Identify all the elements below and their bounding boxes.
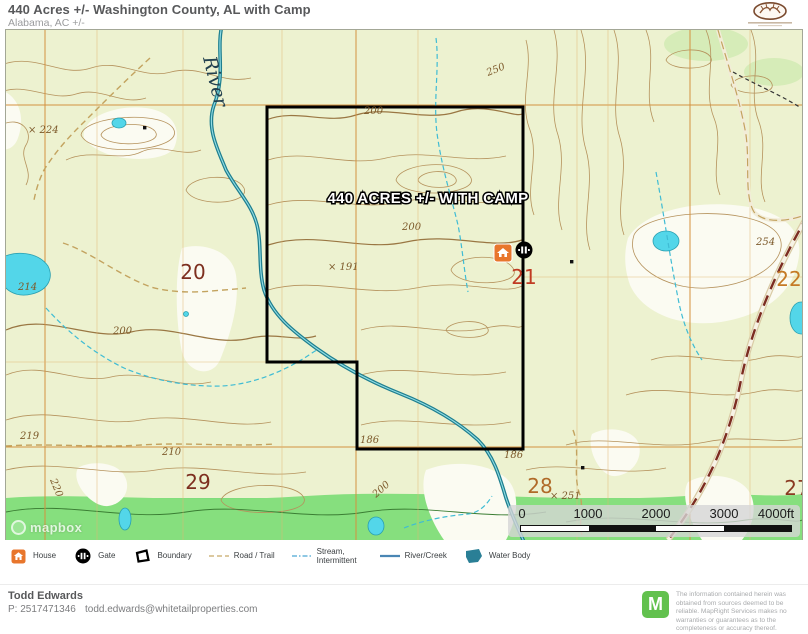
scale-tick: 4000ft	[758, 506, 794, 521]
contour-label: 186	[360, 435, 380, 446]
contour-label: 200	[112, 326, 133, 337]
legend-label: House	[33, 551, 56, 560]
legend-label: Boundary	[157, 551, 191, 560]
footer: Todd Edwards P: 2517471346 todd.edwards@…	[0, 584, 808, 624]
legend-label: River/Creek	[405, 551, 447, 560]
road-trail-icon	[209, 547, 229, 565]
scale-tick: 3000	[710, 506, 739, 521]
header: 440 Acres +/- Washington County, AL with…	[0, 0, 808, 30]
map-canvas[interactable]: × 224 214 250 200 200 200 × 191 186 186 …	[6, 30, 802, 540]
legend-item-river-creek: River/Creek	[380, 547, 447, 565]
contour-label: × 191	[328, 262, 359, 273]
scale-bar: 0 1000 2000 3000 4000ft	[508, 505, 800, 537]
legend-item-boundary: Boundary	[132, 547, 191, 565]
gate-icon	[73, 547, 93, 565]
contour-label: 210	[161, 447, 182, 458]
mapright-logo: M	[642, 591, 669, 618]
agent-name: Todd Edwards	[8, 590, 83, 602]
gate-marker[interactable]	[516, 242, 533, 259]
section-label: 21	[511, 265, 536, 289]
contour-label: 200	[401, 222, 422, 233]
contour-label: 200	[363, 106, 384, 117]
contour-label: × 224	[28, 125, 59, 136]
section-label: 20	[180, 260, 205, 284]
section-label: 27	[784, 476, 802, 500]
scale-bar-segments	[520, 525, 792, 532]
legend-item-stream-intermittent: Stream, Intermittent	[292, 547, 363, 565]
contour-label: × 251	[550, 491, 581, 502]
agent-email: todd.edwards@whitetailproperties.com	[85, 604, 257, 615]
brand-emblem-icon	[740, 1, 800, 29]
mapbox-attribution[interactable]: mapbox	[11, 520, 82, 535]
scale-tick: 1000	[574, 506, 603, 521]
section-label: 29	[185, 470, 210, 494]
whitetail-properties-logo	[740, 1, 800, 29]
boundary-icon	[132, 547, 152, 565]
legend-item-house: House	[8, 547, 56, 565]
map-legend: House Gate Boundary Road / Trail Stream,…	[0, 540, 808, 584]
house-icon	[8, 547, 28, 565]
mapbox-icon	[11, 520, 26, 535]
legend-item-road-trail: Road / Trail	[209, 547, 275, 565]
page-subtitle: Alabama, AC +/-	[8, 17, 85, 29]
contour-label: 186	[504, 450, 524, 461]
house-marker[interactable]	[494, 244, 512, 262]
disclaimer-text: The information contained herein was obt…	[676, 591, 804, 634]
contour-label: 214	[17, 282, 37, 293]
legend-label: Stream, Intermittent	[317, 547, 363, 565]
water-body-icon	[464, 547, 484, 565]
mapbox-wordmark: mapbox	[30, 520, 82, 535]
contour-label: 254	[755, 237, 775, 248]
section-label: 28	[527, 474, 552, 498]
legend-item-water-body: Water Body	[464, 547, 531, 565]
agent-phone: P: 2517471346	[8, 604, 76, 615]
section-label: 22	[776, 267, 801, 291]
legend-label: Water Body	[489, 551, 531, 560]
legend-item-gate: Gate	[73, 547, 115, 565]
page-title: 440 Acres +/- Washington County, AL with…	[8, 2, 311, 17]
stream-intermittent-icon	[292, 547, 312, 565]
scale-tick: 2000	[642, 506, 671, 521]
topo-map-svg: × 224 214 250 200 200 200 × 191 186 186 …	[6, 30, 802, 540]
scale-tick: 0	[518, 506, 525, 521]
legend-label: Road / Trail	[234, 551, 275, 560]
contour-label: 219	[19, 431, 40, 442]
legend-label: Gate	[98, 551, 115, 560]
acreage-label: 440 ACRES +/- WITH CAMP	[328, 190, 529, 207]
river-creek-icon	[380, 547, 400, 565]
